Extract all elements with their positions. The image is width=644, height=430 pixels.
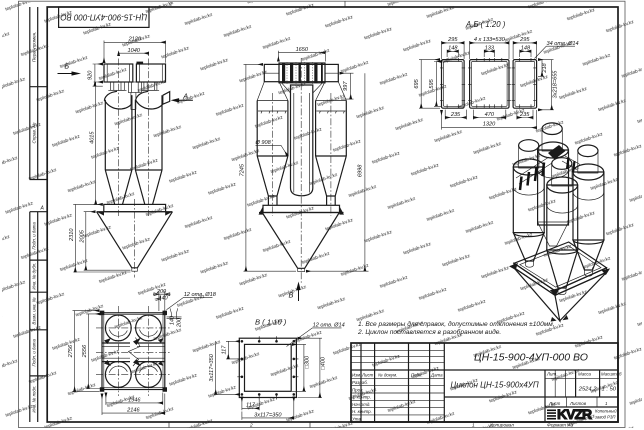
svg-text:В: В — [289, 291, 294, 300]
svg-text:Взам. инв. №: Взам. инв. № — [31, 297, 36, 324]
svg-text:Утв.: Утв. — [352, 417, 362, 422]
svg-text:В ( 1:10 ): В ( 1:10 ) — [255, 318, 287, 327]
svg-text:KVZR: KVZR — [557, 406, 592, 422]
svg-text:1: 1 — [472, 423, 475, 429]
svg-text:2524,2: 2524,2 — [578, 387, 598, 393]
svg-text:1946: 1946 — [128, 397, 141, 403]
svg-text:Нач.отд.: Нач.отд. — [352, 402, 371, 407]
svg-text:1. Все размеры для справок, до: 1. Все размеры для справок, допустимые о… — [358, 320, 555, 328]
svg-text:Лист: Лист — [361, 373, 374, 378]
svg-text:А: А — [182, 92, 188, 101]
svg-text:Подп. и дата: Подп. и дата — [31, 339, 36, 367]
svg-text:Ø 908: Ø 908 — [255, 140, 272, 146]
svg-text:2120: 2120 — [128, 37, 142, 43]
svg-text:695: 695 — [414, 78, 420, 88]
svg-text:295: 295 — [447, 37, 458, 43]
svg-text:117: 117 — [222, 345, 228, 355]
svg-text:Инв. № подл.: Инв. № подл. — [31, 385, 36, 412]
svg-text:235: 235 — [450, 112, 461, 118]
svg-text:4015: 4015 — [89, 131, 95, 144]
svg-text:А,Б ( 1:20 ): А,Б ( 1:20 ) — [465, 20, 506, 29]
svg-text:Дата: Дата — [430, 373, 443, 378]
svg-text:2310: 2310 — [69, 228, 75, 242]
svg-text:117: 117 — [246, 403, 256, 409]
svg-text:140: 140 — [170, 315, 176, 325]
svg-text:Справ. №: Справ. № — [31, 123, 36, 144]
svg-text:3x117=350: 3x117=350 — [209, 353, 215, 381]
svg-text:2146: 2146 — [126, 408, 140, 414]
svg-text:А: А — [40, 206, 45, 212]
svg-text:Подп.: Подп. — [411, 373, 423, 378]
svg-text:200: 200 — [177, 317, 183, 328]
svg-text:295: 295 — [519, 37, 530, 43]
svg-text:Подп. и дата: Подп. и дата — [31, 222, 36, 250]
svg-text:Циклон ЦН-15-900х4УП: Циклон ЦН-15-900х4УП — [451, 381, 539, 390]
svg-text:200: 200 — [156, 289, 167, 295]
svg-text:Перв. примен.: Перв. примен. — [31, 32, 36, 63]
svg-text:1320: 1320 — [483, 121, 496, 127]
svg-text:7245: 7245 — [239, 163, 245, 176]
svg-text:1650: 1650 — [296, 47, 309, 53]
svg-text:235: 235 — [519, 112, 530, 118]
svg-text:Инв. № дубл.: Инв. № дубл. — [31, 263, 36, 290]
svg-text:2: 2 — [169, 2, 173, 7]
svg-text:Б: Б — [65, 63, 70, 70]
svg-text:ЦН-15-900-4УП-000 ВО: ЦН-15-900-4УП-000 ВО — [60, 12, 147, 21]
svg-text:920: 920 — [88, 70, 94, 80]
svg-text:Масштаб: Масштаб — [601, 372, 622, 377]
svg-text:2: 2 — [249, 423, 253, 429]
svg-text:218: 218 — [542, 62, 548, 73]
svg-text:2756: 2756 — [68, 344, 74, 358]
svg-text:1040: 1040 — [127, 48, 140, 54]
svg-text:595: 595 — [429, 78, 435, 88]
svg-text:Копировал: Копировал — [490, 423, 514, 429]
svg-text:1 : 50: 1 : 50 — [602, 387, 617, 393]
svg-text:□300: □300 — [304, 355, 310, 369]
svg-text:4 x 133=530: 4 x 133=530 — [474, 37, 506, 43]
svg-text:Копельный: Копельный — [595, 409, 617, 414]
svg-text:34 отв. Ø14: 34 отв. Ø14 — [547, 41, 579, 47]
svg-text:Лит.: Лит. — [546, 372, 557, 377]
svg-text:ЦН-15-900-4УП-000 ВО: ЦН-15-900-4УП-000 ВО — [474, 352, 588, 364]
svg-text:Разраб.: Разраб. — [352, 380, 368, 385]
svg-text:148: 148 — [521, 46, 531, 52]
svg-text:Масса: Масса — [578, 372, 592, 377]
svg-text:завод РЗП: завод РЗП — [594, 415, 616, 420]
svg-text:№ докум.: № докум. — [378, 373, 397, 378]
svg-text:140: 140 — [158, 295, 168, 301]
svg-text:6998: 6998 — [357, 164, 363, 177]
svg-text:Пров.: Пров. — [352, 387, 364, 392]
svg-text:□400: □400 — [320, 356, 326, 370]
svg-text:2005: 2005 — [80, 229, 86, 243]
svg-text:Формат А3: Формат А3 — [547, 423, 574, 429]
svg-text:3x218=655: 3x218=655 — [552, 70, 558, 99]
svg-text:148: 148 — [448, 46, 458, 52]
svg-text:2556: 2556 — [82, 344, 88, 358]
svg-text:Н. контр.: Н. контр. — [352, 409, 372, 414]
svg-text:2. Циклон поставляется в разоб: 2. Циклон поставляется в разобранном вид… — [357, 328, 501, 336]
svg-text:997: 997 — [343, 81, 349, 91]
svg-text:133: 133 — [485, 46, 495, 52]
svg-text:Изм.: Изм. — [352, 373, 361, 378]
svg-text:3x117=350: 3x117=350 — [254, 412, 282, 418]
svg-text:470: 470 — [485, 112, 495, 118]
svg-text:Т. контр.: Т. контр. — [352, 395, 371, 400]
